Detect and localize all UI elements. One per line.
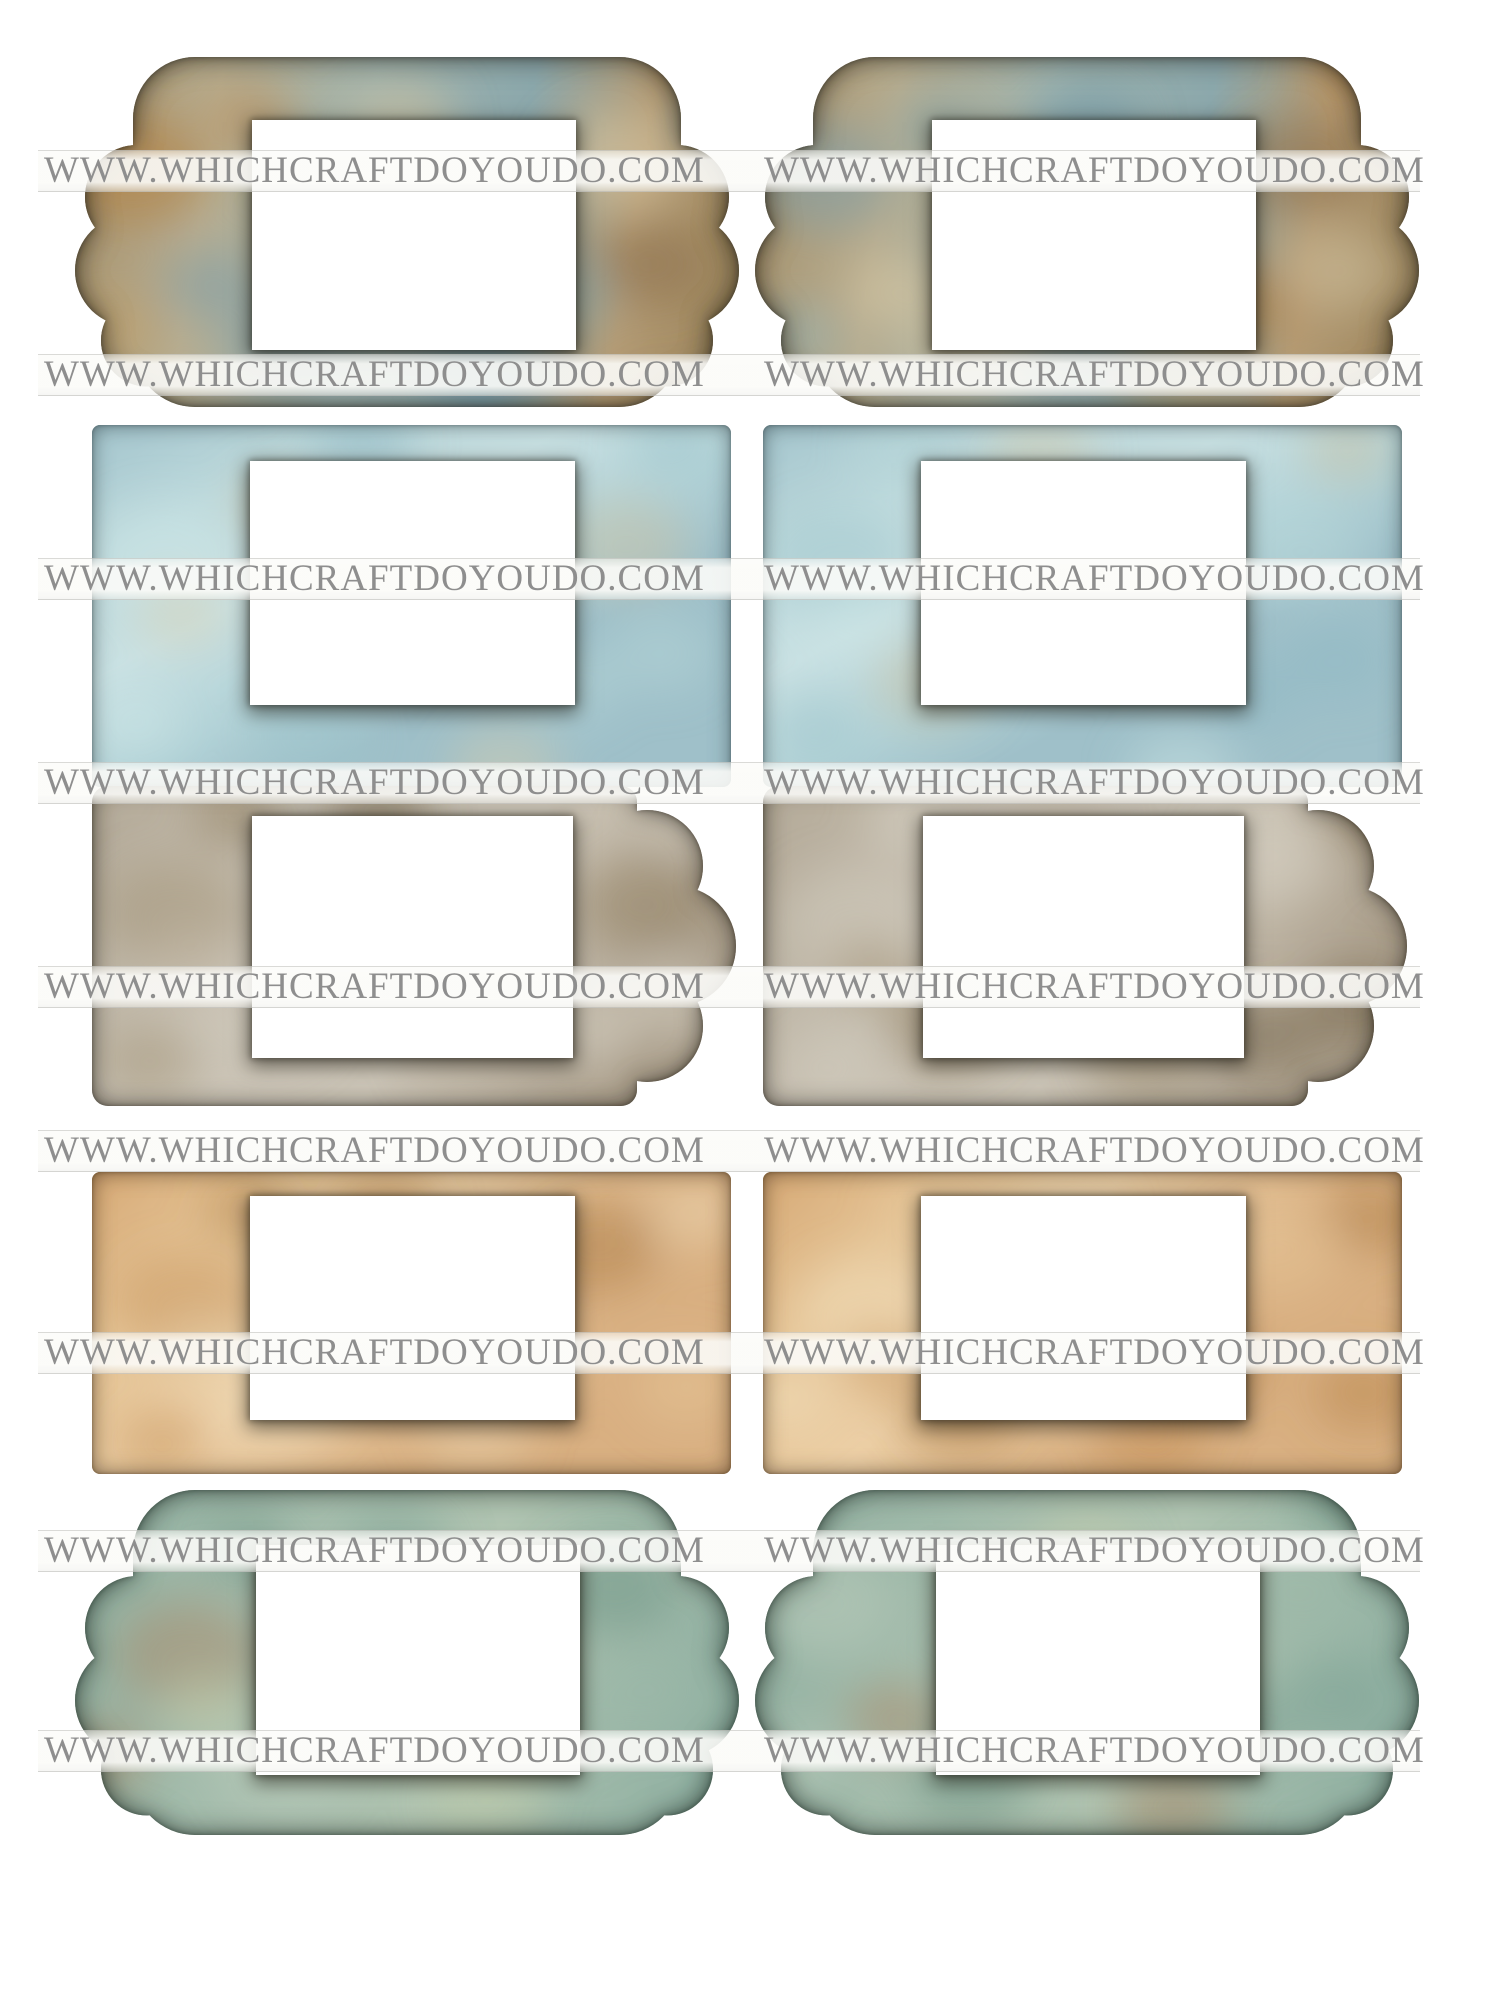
tags-grid (0, 0, 1500, 1996)
specimen-tag-row2-right (763, 425, 1402, 787)
footer: DIGITALDESIGNS WWW.WHICHCRAFTDOYOUDO.COM… (0, 1816, 1500, 1996)
specimen-tag-row1-right (755, 57, 1419, 407)
product-sheet: WWW.WHICHCRAFTDOYOUDO.COMWWW.WHICHCRAFTD… (0, 0, 1500, 1996)
tag-label-window (923, 816, 1244, 1058)
tag-label-window (932, 120, 1256, 350)
specimen-tag-row3-left (92, 786, 737, 1106)
tag-label-window (250, 1196, 575, 1420)
tag-label-window (252, 120, 576, 350)
tag-label-window (252, 816, 573, 1058)
tag-label-window (256, 1545, 580, 1775)
tag-label-window (250, 461, 575, 705)
specimen-tag-row4-left (92, 1172, 731, 1474)
specimen-tag-row1-left (75, 57, 739, 407)
specimen-tag-row2-left (92, 425, 731, 787)
specimen-tag-row5-right (755, 1490, 1419, 1835)
specimen-tag-row5-left (75, 1490, 739, 1835)
specimen-tag-row3-right (763, 786, 1408, 1106)
specimen-tag-row4-right (763, 1172, 1402, 1474)
tag-label-window (936, 1545, 1260, 1775)
tag-label-window (921, 461, 1246, 705)
tag-label-window (921, 1196, 1246, 1420)
